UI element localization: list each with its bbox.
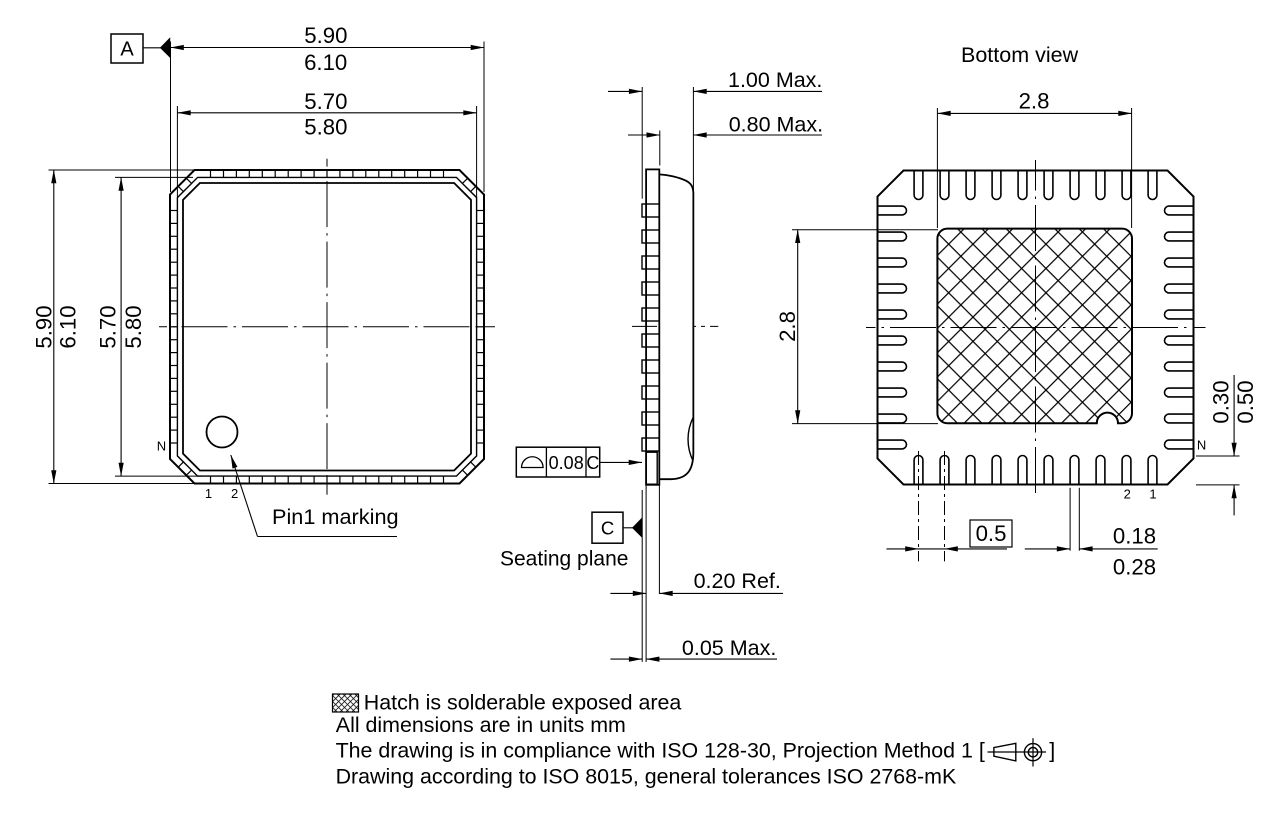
svg-text:5.90: 5.90 [31,305,56,348]
svg-text:5.90: 5.90 [304,23,347,48]
svg-text:2.8: 2.8 [1019,88,1050,113]
svg-text:0.5: 0.5 [976,521,1007,546]
svg-text:0.20 Ref.: 0.20 Ref. [694,569,781,593]
svg-text:2: 2 [231,486,238,501]
svg-text:6.10: 6.10 [304,50,347,75]
svg-text:A: A [120,39,134,61]
svg-text:1: 1 [205,486,212,501]
svg-text:Seating plane: Seating plane [500,548,628,571]
svg-text:Bottom view: Bottom view [961,43,1079,67]
svg-text:5.70: 5.70 [304,89,347,114]
svg-text:N: N [157,439,166,454]
svg-text:]: ] [1049,738,1055,762]
svg-text:0.18: 0.18 [1113,524,1156,549]
svg-text:The drawing is in compliance w: The drawing is in compliance with ISO 12… [336,738,985,762]
svg-text:2: 2 [1124,487,1131,502]
svg-text:0.05 Max.: 0.05 Max. [682,636,776,660]
svg-text:C: C [601,518,614,539]
svg-text:0.80 Max.: 0.80 Max. [729,113,823,137]
svg-text:Pin1 marking: Pin1 marking [272,504,399,529]
svg-text:2.8: 2.8 [775,311,800,342]
svg-text:6.10: 6.10 [56,305,81,348]
svg-text:C: C [586,453,599,473]
svg-text:0.50: 0.50 [1233,380,1258,423]
svg-text:5.80: 5.80 [121,305,146,348]
svg-text:0.30: 0.30 [1209,380,1234,423]
svg-text:0.28: 0.28 [1113,555,1156,580]
svg-text:0.08: 0.08 [549,453,584,473]
svg-text:1.00 Max.: 1.00 Max. [728,68,822,92]
svg-text:5.70: 5.70 [95,305,120,348]
svg-text:1: 1 [1149,487,1156,502]
svg-text:Hatch is solderable exposed ar: Hatch is solderable exposed area [364,691,682,715]
svg-text:Drawing according to ISO 8015,: Drawing according to ISO 8015, general t… [336,764,957,788]
svg-text:5.80: 5.80 [304,115,347,140]
svg-text:All dimensions are in units mm: All dimensions are in units mm [336,713,626,737]
svg-text:N: N [1197,438,1206,453]
